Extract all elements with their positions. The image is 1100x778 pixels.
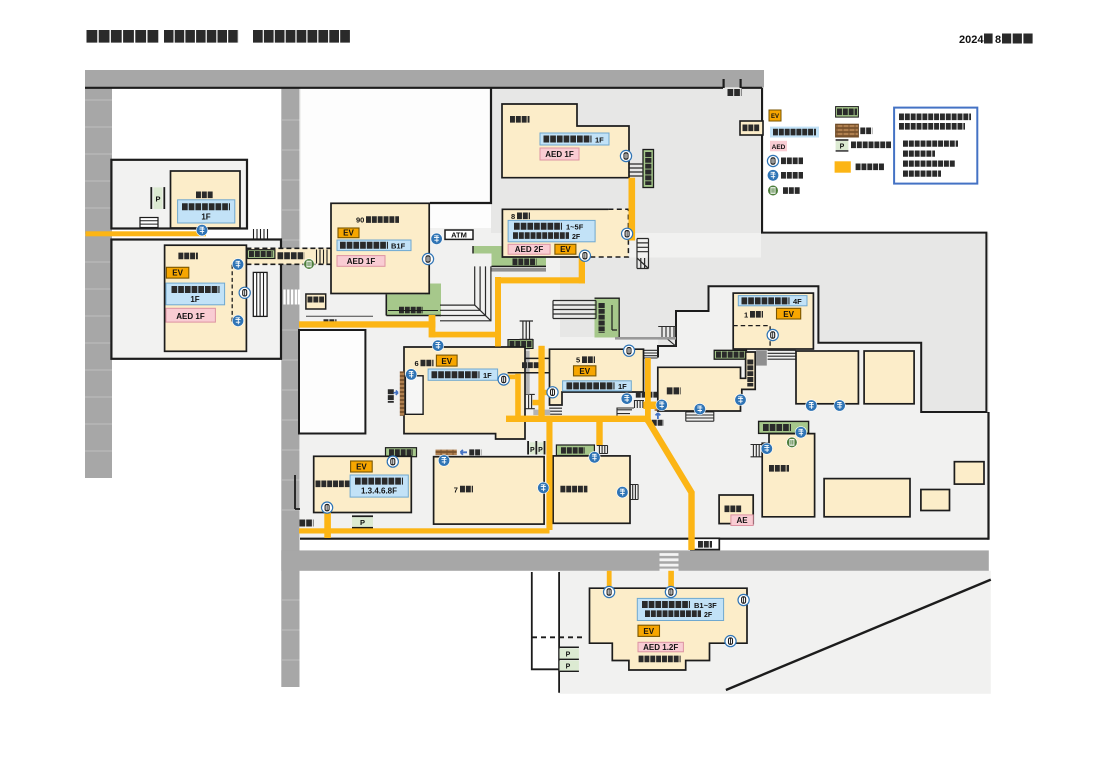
svg-text:EV: EV	[560, 245, 571, 254]
svg-text:B1F: B1F	[391, 242, 406, 251]
svg-text:B1~3F: B1~3F	[694, 601, 717, 610]
svg-text:2F: 2F	[572, 234, 581, 241]
svg-text:1F: 1F	[595, 135, 604, 144]
svg-text:P: P	[155, 195, 160, 204]
svg-text:8: 8	[995, 34, 1001, 46]
svg-text:EV: EV	[441, 357, 452, 366]
svg-text:EV: EV	[172, 269, 183, 278]
svg-text:EV: EV	[643, 627, 654, 636]
svg-text:1~5F: 1~5F	[566, 223, 584, 232]
svg-text:P: P	[538, 447, 543, 454]
svg-text:5: 5	[576, 356, 580, 365]
svg-text:AED 1F: AED 1F	[545, 150, 574, 159]
svg-text:P: P	[566, 652, 571, 659]
svg-text:4F: 4F	[793, 297, 802, 306]
svg-text:AED 1.2F: AED 1.2F	[643, 643, 678, 652]
svg-text:1F: 1F	[190, 295, 199, 304]
svg-text:1.3.4.6.8F: 1.3.4.6.8F	[361, 487, 397, 496]
svg-text:90: 90	[356, 215, 364, 224]
svg-text:EV: EV	[356, 463, 367, 472]
svg-text:1F: 1F	[483, 371, 492, 380]
svg-text:EV: EV	[579, 367, 590, 376]
svg-text:EV: EV	[783, 310, 794, 319]
svg-text:AED 1F: AED 1F	[176, 312, 205, 321]
svg-text:2F: 2F	[704, 612, 713, 619]
svg-text:ATM: ATM	[451, 231, 467, 240]
svg-text:1F: 1F	[618, 382, 627, 391]
svg-text:1F: 1F	[201, 213, 210, 222]
svg-text:AED: AED	[772, 144, 786, 151]
svg-text:1: 1	[744, 310, 748, 319]
svg-text:AE: AE	[736, 516, 748, 525]
svg-text:8: 8	[511, 212, 515, 221]
svg-text:7: 7	[454, 485, 458, 494]
svg-text:6: 6	[415, 359, 419, 368]
svg-text:AED 1F: AED 1F	[347, 257, 376, 266]
svg-text:EV: EV	[771, 114, 779, 120]
svg-text:AED 2F: AED 2F	[515, 245, 544, 254]
svg-text:2024: 2024	[959, 34, 984, 46]
svg-text:P: P	[530, 447, 535, 454]
svg-text:P: P	[360, 518, 365, 527]
svg-text:P: P	[840, 144, 845, 151]
svg-text:EV: EV	[343, 229, 354, 238]
svg-text:P: P	[566, 664, 571, 671]
